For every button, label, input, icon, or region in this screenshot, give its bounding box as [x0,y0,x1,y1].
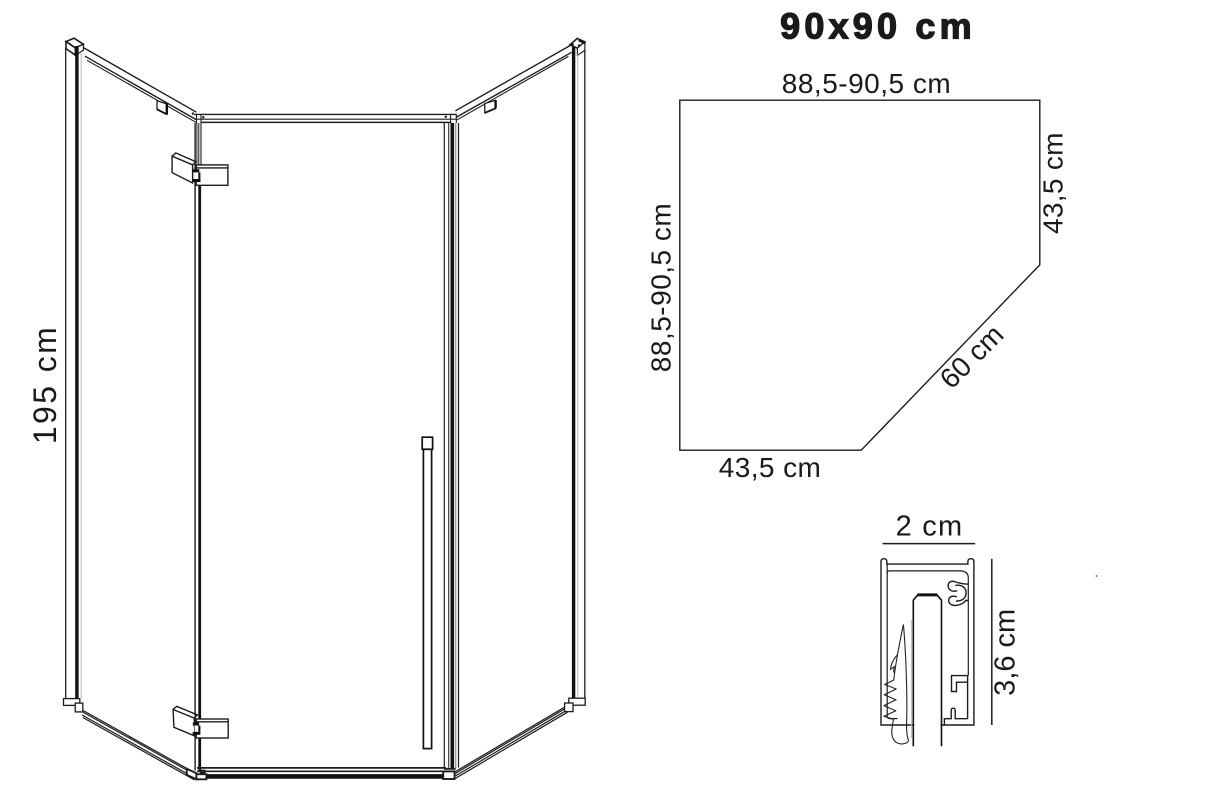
svg-text:195 cm: 195 cm [27,325,63,444]
svg-text:3,6 cm: 3,6 cm [990,609,1022,696]
svg-text:43,5 cm: 43,5 cm [1038,132,1069,234]
svg-text:88,5-90,5 cm: 88,5-90,5 cm [645,203,676,372]
svg-text:2 cm: 2 cm [896,510,964,542]
svg-text:90x90 cm: 90x90 cm [780,6,976,47]
svg-text:43,5 cm: 43,5 cm [719,452,821,483]
svg-text:88,5-90,5 cm: 88,5-90,5 cm [782,68,951,99]
